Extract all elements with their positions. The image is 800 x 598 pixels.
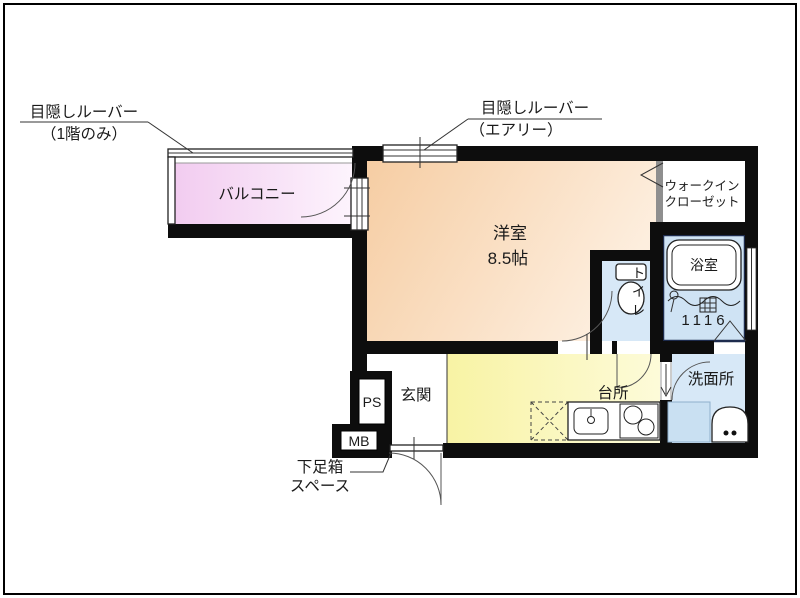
washbasin-knob2 [732,431,737,436]
louver-top-label-1: 目隠しルーバー [481,99,589,117]
wall-toilet-top [590,250,663,261]
balcony-window [351,178,368,230]
kitchen-label: 台所 [597,384,628,402]
shoebox-label-1: 下足箱 [297,458,344,476]
wall-wic-left [656,161,663,222]
washbasin [712,407,748,442]
wic-label-2: クローゼット [664,195,739,209]
wall-mid-2 [612,341,617,354]
entrance-threshold [390,445,443,451]
entrance-label: 玄関 [400,386,431,404]
wall-mid-1 [353,341,558,354]
ps-label: PS [363,394,382,410]
bath-dimension-label: 1116 [681,312,728,329]
washroom-label: 洗面所 [688,370,735,388]
toilet-label: トイレ [630,266,645,322]
wall-wic-bath [650,222,758,235]
bedroom-label: 洋室 [493,224,527,243]
wall-washroom-left-upper [660,354,672,362]
louver-left-label-2: （1階のみ） [41,125,127,143]
bath-label: 浴室 [690,257,718,273]
wall-mid-4 [746,341,758,354]
louver-top-label-2: （エアリー） [469,122,562,139]
mb-label: MB [349,433,370,449]
wic-label-1: ウォークイン [664,179,739,193]
shoebox-label-2: スペース [290,478,350,495]
floor-plan: 目隠しルーバー （1階のみ） 目隠しルーバー （エアリー） バルコニー 洋室 8… [0,0,800,598]
balcony-left-rail [168,157,175,224]
wall-mid-3 [651,341,714,354]
washing-machine-space [668,402,710,442]
floor-plan-svg: 目隠しルーバー （1階のみ） 目隠しルーバー （エアリー） バルコニー 洋室 8… [0,0,800,598]
wall-toilet-left [590,261,602,354]
bedroom-size-label: 8.5帖 [488,249,529,268]
wall-bottom-right [443,443,758,458]
washbasin-knob1 [724,431,729,436]
wall-balcony-bottom [168,224,353,238]
washroom-fixtures [668,402,748,442]
entrance-door-arc [389,453,441,505]
louver-left-label-1: 目隠しルーバー [30,103,138,121]
balcony-label: バルコニー [218,186,295,203]
